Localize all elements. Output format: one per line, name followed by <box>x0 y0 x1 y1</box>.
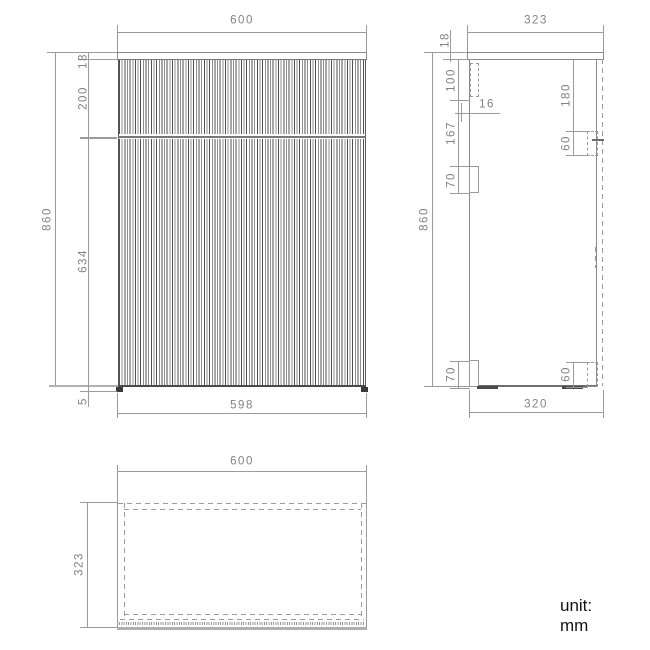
tv-right-edge <box>366 498 367 630</box>
fv-fluted-front <box>118 59 366 387</box>
sv-chain-right-top <box>573 59 574 155</box>
dim-top-width: 600 <box>230 456 254 468</box>
sv-tick-18a <box>443 52 467 53</box>
fv-tick-200 <box>80 137 117 139</box>
fv-ext-top-right <box>366 25 367 52</box>
dim-side-hinge-spacing: 167 <box>446 121 458 145</box>
sv-bracket-hook <box>592 139 604 141</box>
sv-chain-right-bottom <box>573 362 574 387</box>
sv-foot-front <box>477 386 498 389</box>
sv-back-edge <box>596 59 597 386</box>
dim-top-depth: 323 <box>74 552 86 576</box>
dim-side-height-total: 860 <box>419 207 431 231</box>
dim-front-door-height: 634 <box>78 249 90 273</box>
fv-dim-line-bottom <box>117 413 367 414</box>
tv-hidden-front-outer <box>120 619 364 620</box>
sv-hinge-plate-tick <box>461 103 462 122</box>
dim-side-bottom-bracket: 60 <box>561 366 573 382</box>
dim-side-hinge-plate: 16 <box>479 99 495 111</box>
sv-front-edge <box>469 59 470 386</box>
sv-tick-b60b <box>566 387 588 388</box>
tv-tick-323-top <box>80 502 118 503</box>
sv-wall-bracket-top <box>587 131 598 156</box>
sv-countertop <box>467 52 604 60</box>
tv-dim-line-top <box>117 471 367 472</box>
sv-ext-top-left <box>467 25 468 52</box>
fv-foot-left <box>116 387 123 392</box>
sv-bottom-hinge <box>469 360 479 387</box>
unit-label: unit: mm <box>560 596 620 636</box>
dim-side-depth-bottom: 320 <box>524 399 548 411</box>
sv-tick-b70a <box>450 361 470 362</box>
dim-front-plinth-gap: 5 <box>78 397 90 405</box>
dim-side-top-thickness: 18 <box>440 32 452 48</box>
sv-ext-320-right <box>603 390 604 418</box>
dim-side-bottom-block: 70 <box>446 366 458 382</box>
tv-hidden-left <box>124 503 125 619</box>
tv-tick-323-bottom <box>80 627 118 628</box>
dim-front-top-thickness: 18 <box>78 53 90 69</box>
fv-dim-line-860 <box>55 52 56 386</box>
sv-wall-bracket-bottom <box>587 362 598 387</box>
sv-chain-left-bottom <box>458 361 459 388</box>
tv-hidden-right <box>361 503 362 619</box>
tv-left-edge <box>117 502 118 630</box>
tv-hidden-back-outer <box>118 503 366 504</box>
dim-side-hinge-block: 70 <box>446 172 458 188</box>
sv-tick-18b <box>443 59 467 60</box>
sv-dim-line-860 <box>432 52 433 386</box>
dim-side-bracket-height: 60 <box>561 135 573 151</box>
dim-front-width-bottom: 598 <box>230 400 254 412</box>
sv-dim-line-top <box>467 32 604 33</box>
dim-front-width-top: 600 <box>230 15 254 27</box>
sv-mid-hidden-segment <box>595 247 596 268</box>
fv-foot-right <box>361 387 368 392</box>
dim-front-height-total: 860 <box>42 207 54 231</box>
sv-dim-line-320 <box>469 412 603 413</box>
sv-tick-100 <box>450 100 470 101</box>
fv-ext-top-left <box>117 25 118 52</box>
dim-side-hinge-offset: 100 <box>446 68 458 92</box>
fv-dim-line-top <box>117 32 367 33</box>
sv-tick-60 <box>566 155 588 156</box>
fv-ext-bottom-right <box>366 393 367 418</box>
sv-mid-hinge <box>469 166 479 193</box>
sv-tick-b70b <box>450 388 470 389</box>
sv-top-hinge <box>470 63 479 97</box>
sv-tick-b60a <box>566 362 588 363</box>
fv-drawer-divider <box>118 136 366 138</box>
sv-ext-320-left <box>469 390 470 418</box>
dim-front-drawer-height: 200 <box>78 86 90 110</box>
tv-front-bar <box>117 627 367 630</box>
technical-drawing: 600 598 860 18 200 634 5 323 <box>0 0 650 650</box>
dim-side-bracket-offset: 180 <box>561 83 573 107</box>
fv-ext-bottom-left <box>117 393 118 418</box>
tv-dim-line-323 <box>87 502 88 627</box>
sv-chain-left-top <box>458 59 459 193</box>
tv-hidden-front-inner <box>124 614 361 615</box>
fv-ext-860-bottom <box>49 385 118 387</box>
sv-ext-860-bottom <box>424 386 469 387</box>
sv-ext-top-right <box>603 25 604 52</box>
sv-tick-167 <box>450 166 470 167</box>
sv-tick-70 <box>450 193 470 194</box>
dim-side-depth-top: 323 <box>524 15 548 27</box>
tv-hidden-back-inner <box>124 509 361 510</box>
fv-tick-5 <box>80 391 117 392</box>
sv-tick-180 <box>566 131 588 132</box>
tv-fluted-edge <box>119 622 365 625</box>
sv-back-hidden-line <box>602 59 603 386</box>
